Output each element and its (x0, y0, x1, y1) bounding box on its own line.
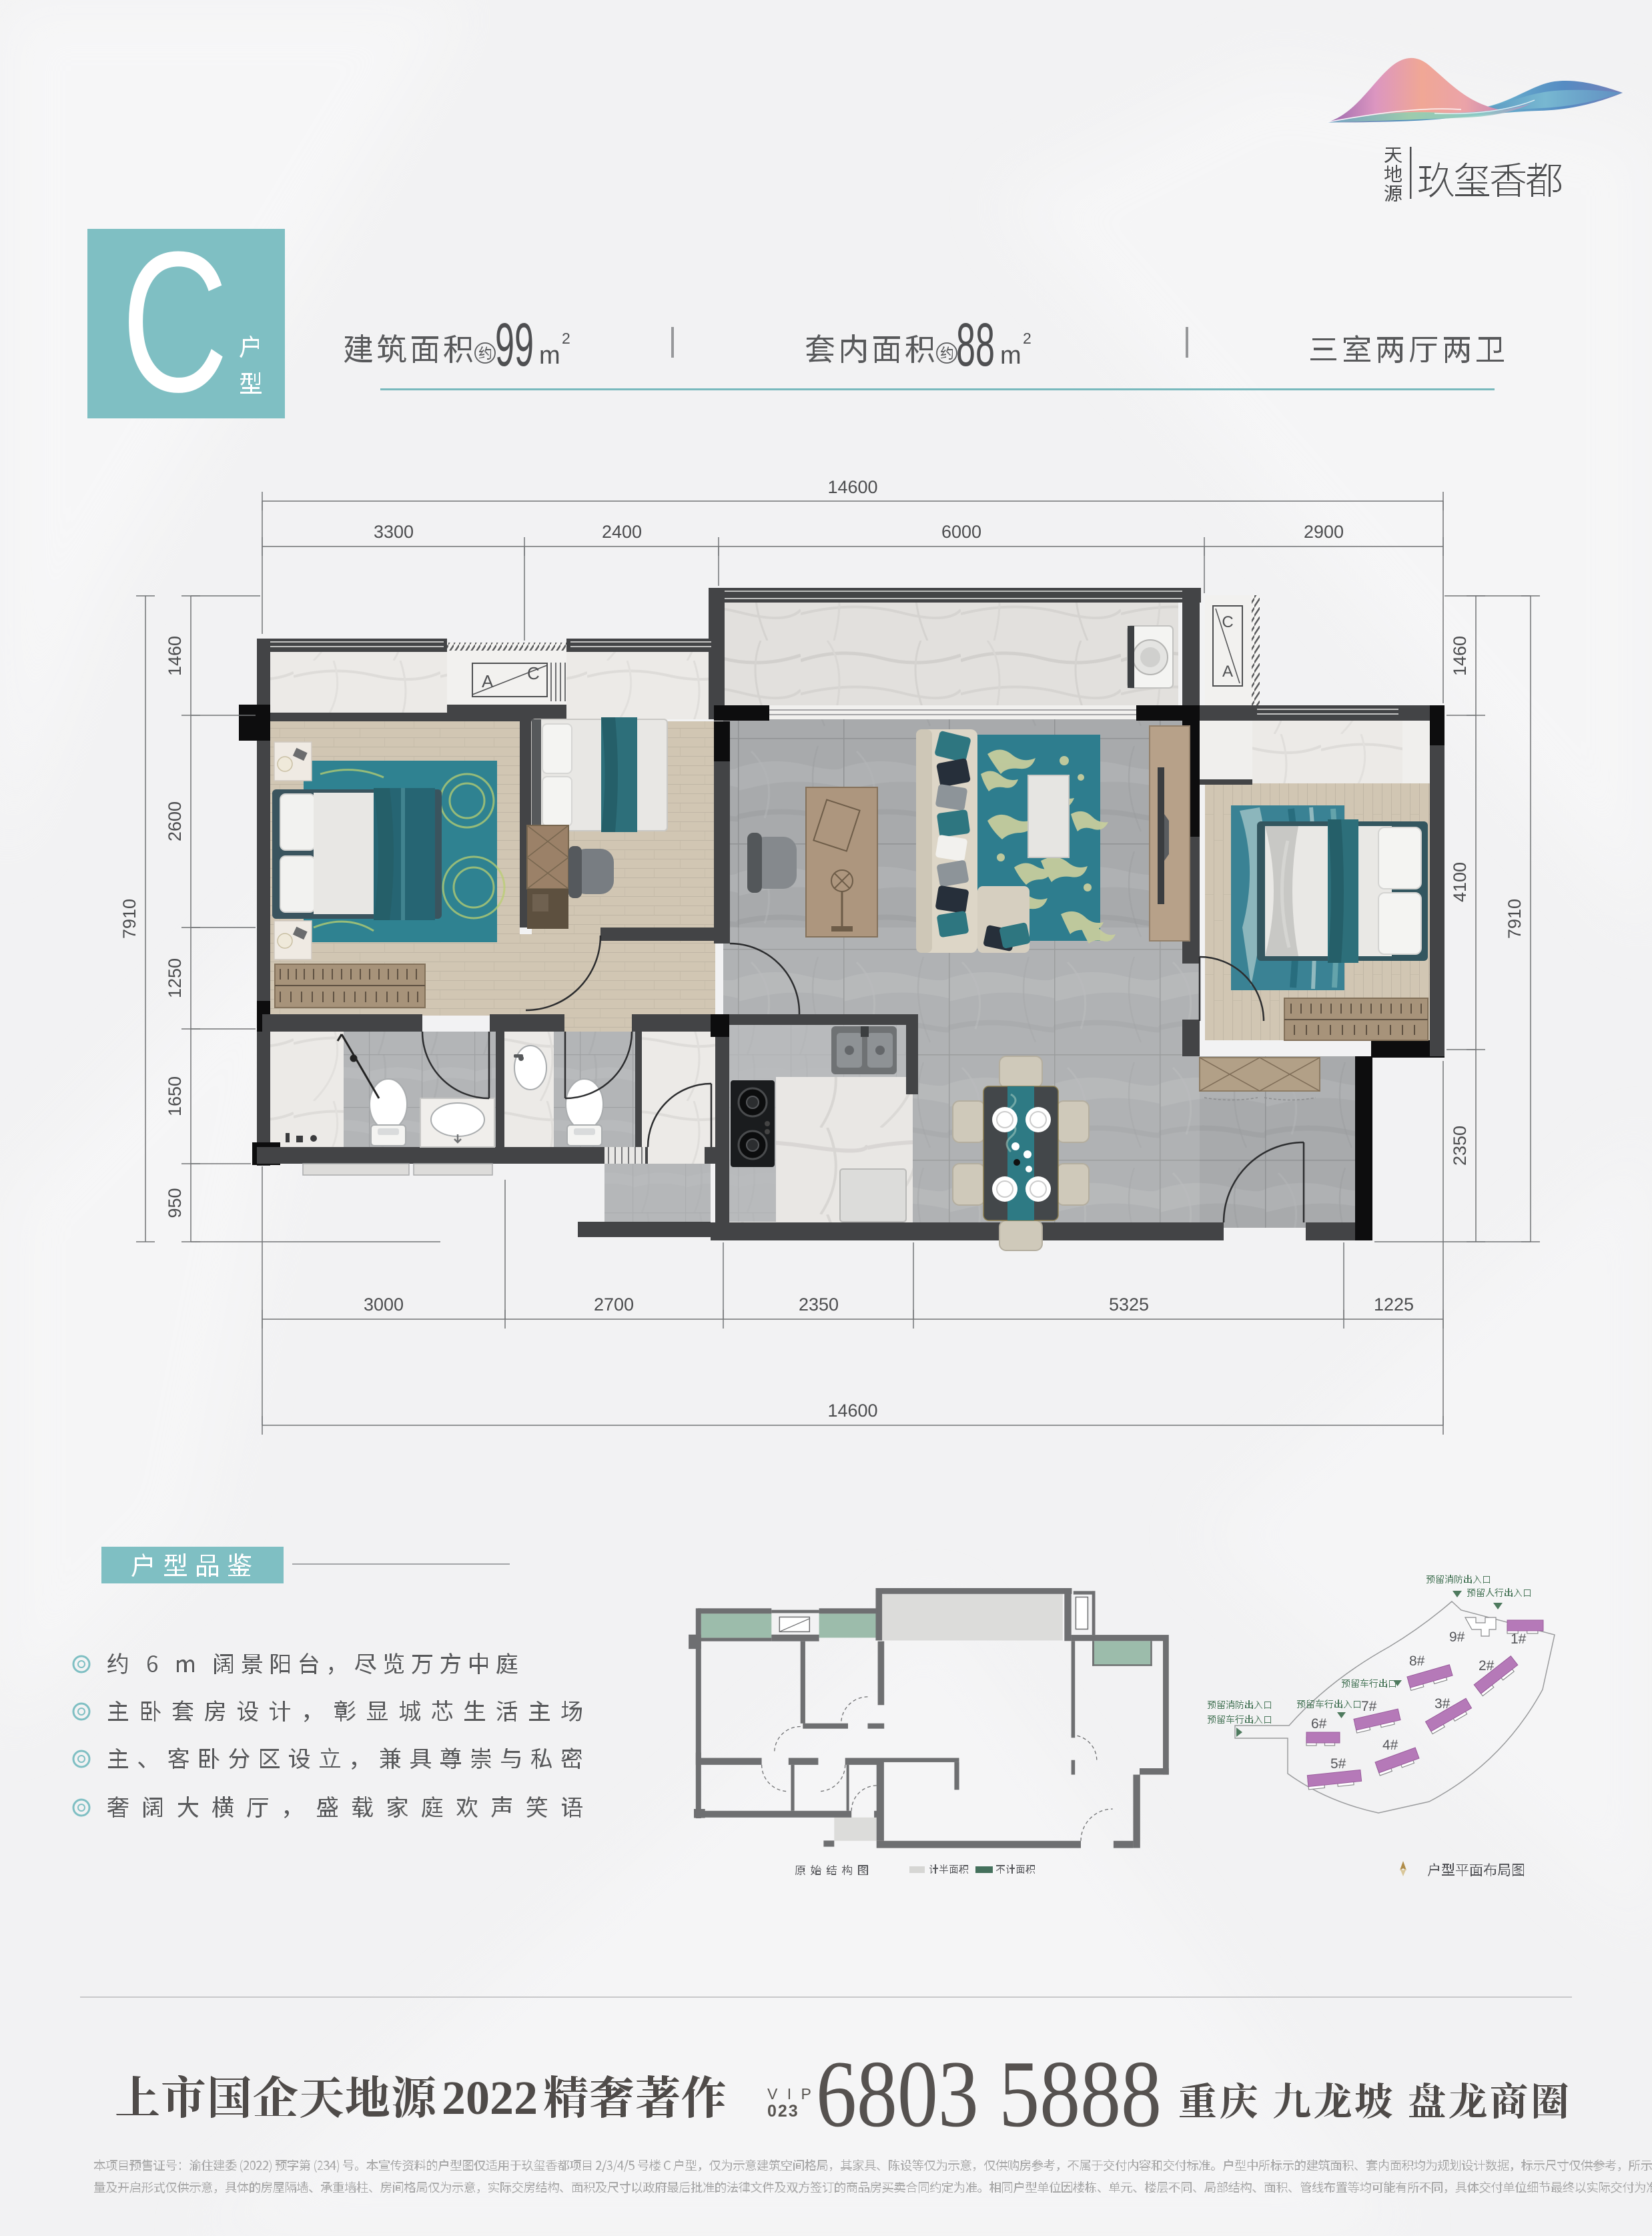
svg-text:2600: 2600 (165, 801, 185, 841)
svg-text:2#: 2# (1479, 1658, 1495, 1673)
svg-text:C: C (527, 663, 540, 683)
svg-text:5325: 5325 (1109, 1294, 1149, 1315)
svg-text:2350: 2350 (1450, 1126, 1470, 1166)
svg-text:1650: 1650 (165, 1076, 185, 1116)
svg-text:5#: 5# (1330, 1756, 1346, 1772)
svg-text:3#: 3# (1434, 1696, 1451, 1712)
svg-text:1250: 1250 (165, 958, 185, 998)
svg-text:A: A (482, 671, 494, 691)
svg-text:1#: 1# (1511, 1631, 1527, 1647)
svg-text:A: A (1222, 663, 1233, 681)
svg-text:7#: 7# (1361, 1699, 1377, 1714)
svg-text:3000: 3000 (364, 1294, 404, 1315)
svg-text:4100: 4100 (1450, 862, 1470, 902)
svg-text:2350: 2350 (799, 1294, 839, 1315)
svg-text:8#: 8# (1409, 1653, 1425, 1669)
svg-text:7910: 7910 (1505, 899, 1525, 939)
svg-text:V I P: V I P (767, 2085, 814, 2103)
svg-text:99: 99 (495, 311, 534, 379)
svg-text:3300: 3300 (374, 522, 414, 542)
svg-text:1460: 1460 (165, 636, 185, 676)
svg-text:1225: 1225 (1374, 1294, 1414, 1315)
svg-text:7910: 7910 (119, 899, 139, 939)
svg-text:2: 2 (1023, 330, 1031, 347)
svg-text:2: 2 (562, 330, 570, 347)
svg-text:2900: 2900 (1304, 522, 1344, 542)
svg-text:950: 950 (165, 1188, 185, 1218)
svg-text:6000: 6000 (941, 522, 981, 542)
svg-text:2700: 2700 (594, 1294, 634, 1315)
svg-text:C: C (121, 210, 228, 433)
svg-text:023: 023 (767, 2102, 799, 2121)
svg-text:C: C (1222, 613, 1233, 631)
svg-text:6803 5888: 6803 5888 (816, 2041, 1162, 2147)
svg-text:2400: 2400 (602, 522, 642, 542)
svg-text:4#: 4# (1382, 1738, 1398, 1753)
svg-text:9#: 9# (1449, 1629, 1465, 1645)
svg-text:m: m (1000, 342, 1021, 370)
svg-text:88: 88 (956, 311, 995, 379)
svg-text:14600: 14600 (827, 1401, 877, 1421)
svg-text:m: m (539, 342, 560, 370)
svg-text:2022: 2022 (442, 2071, 538, 2125)
svg-text:6#: 6# (1311, 1716, 1327, 1732)
svg-text:14600: 14600 (827, 477, 877, 497)
svg-text:1460: 1460 (1450, 636, 1470, 676)
